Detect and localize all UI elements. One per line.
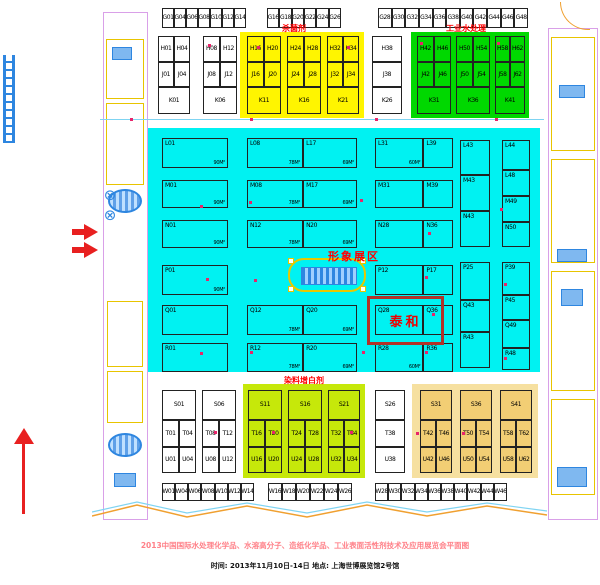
booth-cell: U28 — [305, 447, 322, 473]
booth-label: U08 — [205, 457, 216, 463]
booth-cell: N1278M² — [247, 220, 303, 248]
survey-marker-icon — [214, 431, 217, 434]
booth-label: K41 — [505, 98, 515, 104]
booth-cell: H28 — [304, 36, 321, 62]
booth-label: J58 — [498, 72, 506, 78]
booth-cell: T04 — [179, 420, 196, 447]
booth-cell: K21 — [327, 87, 359, 114]
survey-marker-icon — [504, 283, 507, 286]
booth-label: J62 — [513, 72, 521, 78]
booth-label: T42 — [423, 431, 433, 437]
booth-cell: R2860M² — [375, 343, 423, 372]
booth-label: W06 — [189, 489, 201, 495]
booth-label: J34 — [347, 72, 355, 78]
booth-area-label: 78M² — [289, 328, 300, 333]
booth-cell: R36 — [423, 343, 453, 372]
booth-cell: G34 — [419, 8, 433, 28]
booth-label: U34 — [347, 457, 358, 463]
booth-label: W10 — [215, 489, 227, 495]
booth-label: H32 — [330, 46, 341, 52]
booth-label: R43 — [463, 335, 474, 341]
booth-cell: S11 — [248, 390, 282, 420]
booth-label: T24 — [291, 431, 301, 437]
booth-label: H50 — [459, 46, 470, 52]
booth-cell: R01 — [162, 343, 228, 372]
booth-label: W24 — [325, 489, 337, 495]
booth-cell: S21 — [328, 390, 360, 420]
booth-cell: Q01 — [162, 305, 228, 335]
entrance-arrow-icon — [84, 224, 98, 240]
booth-area-label: 60M² — [409, 161, 420, 166]
booth-cell: T38 — [375, 420, 405, 447]
booth-cell: W28 — [375, 483, 388, 501]
booth-cell: U34 — [344, 447, 360, 473]
corridor-room — [106, 103, 144, 185]
booth-cell: G14 — [234, 8, 246, 28]
booth-cell: K01 — [158, 87, 190, 114]
booth-label: U54 — [479, 457, 490, 463]
booth-cell: P0190M² — [162, 265, 228, 295]
booth-cell: N0190M² — [162, 220, 228, 248]
booth-label: M49 — [505, 199, 517, 205]
booth-cell: R1278M² — [247, 343, 303, 372]
booth-cell: U38 — [375, 447, 405, 473]
booth-cell: U24 — [288, 447, 305, 473]
booth-label: T04 — [182, 431, 192, 437]
booth-label: U28 — [308, 457, 319, 463]
booth-label: W26 — [339, 489, 351, 495]
booth-cell: M39 — [423, 180, 453, 208]
booth-cell: Q2069M² — [303, 305, 357, 335]
booth-label: S01 — [174, 402, 184, 408]
booth-label: G16 — [268, 15, 279, 21]
booth-label: G48 — [516, 15, 527, 21]
booth-cell: K16 — [287, 87, 321, 114]
booth-label: M43 — [463, 178, 475, 184]
booth-label: L39 — [426, 141, 436, 147]
booth-label: Q12 — [250, 308, 261, 314]
survey-marker-icon — [206, 278, 209, 281]
booth-label: L48 — [505, 173, 515, 179]
corridor-fixture — [557, 467, 587, 487]
corridor-fixture — [112, 47, 132, 60]
booth-cell: Q49 — [502, 320, 530, 348]
booth-cell: M0878M² — [247, 180, 303, 208]
booth-cell: J62 — [510, 62, 525, 87]
booth-cell: W06 — [188, 483, 201, 501]
booth-label: W20 — [297, 489, 309, 495]
booth-label: L31 — [378, 141, 388, 147]
survey-marker-icon — [347, 46, 350, 49]
booth-cell: T28 — [305, 420, 322, 447]
booth-cell: L44 — [502, 140, 530, 170]
booth-cell: J38 — [372, 62, 402, 87]
booth-cell: M49 — [502, 196, 530, 222]
right-corridor — [548, 28, 598, 520]
booth-label: H12 — [223, 46, 234, 52]
booth-cell: W14 — [241, 483, 254, 501]
booth-label: J28 — [308, 72, 316, 78]
survey-marker-icon — [500, 208, 503, 211]
booth-label: W22 — [311, 489, 323, 495]
booth-label: U42 — [423, 457, 434, 463]
zone-title-dye-brightener: 染料增白剂 — [284, 375, 324, 386]
booth-label: W18 — [283, 489, 295, 495]
zone-title-bactericide: 杀菌剂 — [282, 23, 306, 34]
booth-cell: L0878M² — [247, 138, 303, 168]
survey-marker-icon — [130, 118, 133, 121]
booth-label: L01 — [165, 141, 175, 147]
booth-cell: U16 — [248, 447, 265, 473]
booth-cell: P39 — [502, 262, 530, 295]
booth-label: N50 — [505, 225, 516, 231]
booth-label: W30 — [389, 489, 401, 495]
booth-cell: G30 — [392, 8, 406, 28]
survey-marker-icon — [425, 276, 428, 279]
booth-label: W40 — [455, 489, 467, 495]
booth-cell: L3160M² — [375, 138, 423, 168]
booth-label: W12 — [228, 489, 240, 495]
survey-marker-icon — [462, 432, 465, 435]
booth-label: U01 — [165, 457, 176, 463]
survey-marker-icon — [495, 118, 498, 121]
booth-cell: W38 — [441, 483, 454, 501]
booth-cell: G24 — [316, 8, 328, 28]
booth-cell: M31 — [375, 180, 423, 208]
booth-label: U04 — [182, 457, 193, 463]
booth-cell: W10 — [215, 483, 228, 501]
booth-label: M39 — [426, 183, 438, 189]
aisle-line — [100, 119, 544, 120]
booth-cell: L48 — [502, 170, 530, 196]
booth-cell: J08 — [203, 62, 220, 87]
booth-label: G26 — [329, 15, 340, 21]
booth-label: G46 — [502, 15, 513, 21]
booth-area-label: 60M² — [409, 365, 420, 370]
booth-label: H20 — [267, 46, 278, 52]
booth-cell: W44 — [481, 483, 494, 501]
booth-label: W14 — [241, 489, 253, 495]
plan-title: 2013中国国际水处理化学品、水溶高分子、造纸化学品、工业表面活性剂技术及应用展… — [75, 540, 535, 551]
booth-area-label: 78M² — [289, 161, 300, 166]
booth-label: M17 — [306, 183, 318, 189]
booth-cell: H01 — [158, 36, 174, 62]
booth-label: J12 — [224, 72, 232, 78]
door-arc-icon — [560, 2, 590, 30]
booth-label: W04 — [176, 489, 188, 495]
booth-cell: H54 — [473, 36, 490, 62]
booth-cell: H42 — [417, 36, 434, 62]
booth-area-label: 90M² — [214, 241, 225, 246]
booth-label: T58 — [503, 431, 513, 437]
booth-label: K26 — [382, 98, 392, 104]
booth-label: G28 — [379, 15, 390, 21]
booth-cell: H24 — [287, 36, 304, 62]
booth-label: R28 — [378, 346, 389, 352]
booth-cell: U01 — [162, 447, 179, 473]
plan-date-venue: 时间: 2013年11月10日-14日 地点: 上海世博展览馆2号馆 — [75, 561, 535, 571]
booth-cell: S16 — [288, 390, 322, 420]
booth-cell: M0190M² — [162, 180, 228, 208]
booth-cell: G06 — [186, 8, 198, 28]
left-corridor — [103, 12, 148, 520]
booth-label: U46 — [439, 457, 450, 463]
booth-label: H04 — [177, 46, 188, 52]
booth-label: J01 — [162, 72, 170, 78]
survey-marker-icon — [200, 205, 203, 208]
booth-cell: J58 — [495, 62, 510, 87]
booth-label: H01 — [161, 46, 172, 52]
booth-label: T32 — [331, 431, 341, 437]
booth-cell: H08 — [203, 36, 220, 62]
booth-label: U62 — [519, 457, 530, 463]
booth-label: W28 — [375, 489, 387, 495]
booth-label: W01 — [162, 489, 174, 495]
booth-label: K06 — [215, 98, 225, 104]
booth-label: J50 — [460, 72, 468, 78]
booth-label: H38 — [382, 46, 393, 52]
booth-cell: T62 — [516, 420, 532, 447]
booth-label: G01 — [162, 15, 173, 21]
dock-ramp-icon — [3, 55, 15, 143]
corridor-room — [107, 371, 143, 423]
booth-label: N01 — [165, 223, 176, 229]
booth-cell: H20 — [264, 36, 281, 62]
booth-cell: U62 — [516, 447, 532, 473]
booth-label: J42 — [421, 72, 429, 78]
booth-label: Q43 — [463, 303, 474, 309]
booth-label: L17 — [306, 141, 316, 147]
booth-cell: K06 — [203, 87, 237, 114]
booth-label: R20 — [306, 346, 317, 352]
booth-cell: W30 — [388, 483, 401, 501]
booth-label: U16 — [251, 457, 262, 463]
booth-area-label: 69M² — [343, 161, 354, 166]
booth-label: U50 — [463, 457, 474, 463]
booth-label: G14 — [234, 15, 245, 21]
survey-marker-icon — [375, 118, 378, 121]
booth-label: N20 — [306, 223, 317, 229]
booth-cell: N2069M² — [303, 220, 357, 248]
booth-label: K16 — [299, 98, 309, 104]
booth-cell: W40 — [454, 483, 467, 501]
booth-label: N43 — [463, 214, 474, 220]
booth-cell: P25 — [460, 262, 490, 300]
booth-label: H58 — [497, 46, 508, 52]
booth-cell: N50 — [502, 222, 530, 247]
booth-label: G42 — [475, 15, 486, 21]
booth-label: H28 — [307, 46, 318, 52]
booth-label: H46 — [437, 46, 448, 52]
booth-cell: J20 — [264, 62, 281, 87]
booth-cell: U46 — [436, 447, 452, 473]
booth-area-label: 69M² — [343, 201, 354, 206]
booth-cell: W36 — [428, 483, 441, 501]
facility-symbol-icon: ⊗⊗ — [97, 186, 123, 225]
booth-cell: U04 — [179, 447, 196, 473]
booth-cell: R43 — [460, 332, 490, 368]
booth-cell: H12 — [220, 36, 237, 62]
survey-marker-icon — [200, 352, 203, 355]
booth-label: W08 — [202, 489, 214, 495]
booth-cell: K31 — [417, 87, 451, 114]
booth-cell: S31 — [420, 390, 452, 420]
booth-cell: T46 — [436, 420, 452, 447]
booth-cell: G28 — [378, 8, 392, 28]
booth-label: N28 — [378, 223, 389, 229]
booth-label: G04 — [174, 15, 185, 21]
booth-label: S16 — [300, 402, 310, 408]
booth-cell: J24 — [287, 62, 304, 87]
corridor-fixture — [561, 289, 583, 306]
survey-marker-icon — [432, 313, 435, 316]
booth-area-label: 69M² — [343, 241, 354, 246]
corridor-fixture — [559, 85, 585, 98]
survey-marker-icon — [362, 351, 365, 354]
booth-cell: Q43 — [460, 300, 490, 332]
booth-cell: J54 — [473, 62, 490, 87]
booth-label: S31 — [431, 402, 441, 408]
booth-cell: W32 — [401, 483, 414, 501]
booth-cell: G48 — [514, 8, 528, 28]
booth-cell: S36 — [460, 390, 492, 420]
survey-marker-icon — [250, 118, 253, 121]
booth-cell: T54 — [476, 420, 492, 447]
booth-cell: J46 — [434, 62, 451, 87]
survey-marker-icon — [504, 357, 507, 360]
floor-plan: ⊗⊗ 杀菌剂 工业水处理 — [0, 0, 600, 585]
booth-area-label: 69M² — [343, 365, 354, 370]
booth-cell: J42 — [417, 62, 434, 87]
booth-label: G38 — [447, 15, 458, 21]
booth-cell: N43 — [460, 211, 490, 247]
zone-title-image-area: 形象展区 — [328, 248, 380, 264]
booth-cell: K36 — [456, 87, 490, 114]
booth-label: G22 — [305, 15, 316, 21]
zone-title-industrial-water: 工业水处理 — [446, 23, 486, 34]
restroom-fixture-icon — [108, 433, 142, 457]
booth-label: J46 — [438, 72, 446, 78]
corridor-fixture — [557, 249, 587, 262]
booth-cell: T24 — [288, 420, 305, 447]
booth-cell: H04 — [174, 36, 190, 62]
booth-cell: G10 — [210, 8, 222, 28]
corridor-fixture — [114, 473, 136, 487]
booth-label: K11 — [259, 98, 269, 104]
corridor-room — [551, 159, 595, 263]
booth-cell: G32 — [405, 8, 419, 28]
survey-marker-icon — [350, 431, 353, 434]
booth-area-label: 90M² — [214, 161, 225, 166]
booth-cell: W12 — [228, 483, 241, 501]
booth-cell: J12 — [220, 62, 237, 87]
booth-cell: S26 — [375, 390, 405, 420]
booth-label: S21 — [339, 402, 349, 408]
booth-cell: W20 — [296, 483, 310, 501]
booth-label: U20 — [268, 457, 279, 463]
booth-label: J04 — [178, 72, 186, 78]
booth-label: P17 — [426, 268, 436, 274]
booth-cell: J34 — [343, 62, 359, 87]
booth-cell: G46 — [501, 8, 515, 28]
booth-cell: P17 — [423, 265, 453, 295]
booth-cell: H16 — [247, 36, 264, 62]
booth-label: T01 — [165, 431, 175, 437]
booth-label: H42 — [420, 46, 431, 52]
booth-label: S11 — [260, 402, 270, 408]
booth-cell: J01 — [158, 62, 174, 87]
booth-label: M01 — [165, 183, 177, 189]
entrance-arrow-icon — [84, 242, 98, 258]
booth-label: W38 — [441, 489, 453, 495]
booth-cell: U42 — [420, 447, 436, 473]
escalator-corner — [288, 286, 294, 292]
booth-cell: J16 — [247, 62, 264, 87]
booth-label: G34 — [420, 15, 431, 21]
survey-marker-icon — [360, 199, 363, 202]
booth-label: U32 — [331, 457, 342, 463]
booth-label: T16 — [251, 431, 261, 437]
booth-cell: T32 — [328, 420, 344, 447]
survey-marker-icon — [257, 46, 260, 49]
booth-cell: U08 — [202, 447, 219, 473]
booth-cell: L43 — [460, 140, 490, 175]
booth-cell: N28 — [375, 220, 423, 248]
booth-cell: S01 — [162, 390, 196, 420]
survey-marker-icon — [425, 351, 428, 354]
survey-marker-icon — [416, 432, 419, 435]
booth-label: L44 — [505, 143, 515, 149]
booth-label: J08 — [207, 72, 215, 78]
booth-label: T54 — [479, 431, 489, 437]
booth-label: H24 — [290, 46, 301, 52]
booth-label: T38 — [385, 431, 395, 437]
booth-label: G30 — [393, 15, 404, 21]
booth-area-label: 78M² — [289, 201, 300, 206]
booth-label: P39 — [505, 265, 515, 271]
booth-label: U12 — [222, 457, 233, 463]
booth-label: S36 — [471, 402, 481, 408]
entrance-up-arrow-icon — [14, 428, 34, 444]
booth-cell: J04 — [174, 62, 190, 87]
escalator-corner — [360, 286, 366, 292]
booth-label: R01 — [165, 346, 176, 352]
booth-cell: J32 — [327, 62, 343, 87]
booth-label: K31 — [429, 98, 439, 104]
booth-cell: P12 — [375, 265, 423, 295]
escalator-steps — [301, 267, 357, 285]
south-boundary-wave — [92, 500, 548, 524]
booth-label: M31 — [378, 183, 390, 189]
booth-cell: U50 — [460, 447, 476, 473]
booth-area-label: 90M² — [214, 288, 225, 293]
booth-cell: G04 — [174, 8, 186, 28]
booth-label: N36 — [426, 223, 437, 229]
booth-label: J24 — [291, 72, 299, 78]
booth-cell: H32 — [327, 36, 343, 62]
booth-label: U24 — [291, 457, 302, 463]
booth-cell: T12 — [219, 420, 236, 447]
booth-cell: U12 — [219, 447, 236, 473]
booth-label: T62 — [519, 431, 529, 437]
survey-marker-icon — [208, 44, 211, 47]
booth-cell: U54 — [476, 447, 492, 473]
booth-label: T28 — [308, 431, 318, 437]
booth-label: S41 — [511, 402, 521, 408]
survey-marker-icon — [428, 232, 431, 235]
booth-cell: M1769M² — [303, 180, 357, 208]
booth-cell: H46 — [434, 36, 451, 62]
